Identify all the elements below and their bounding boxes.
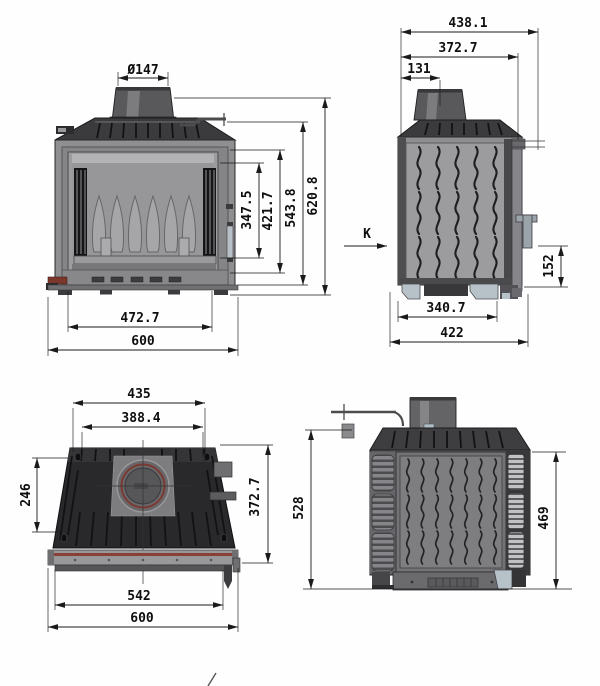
dim-label-front-total-height: 620.8 xyxy=(306,176,321,215)
dim-label-top-total-width: 600 xyxy=(130,611,154,626)
rear-bottom-drawer xyxy=(393,572,508,590)
front-feet xyxy=(58,290,228,295)
section-marker-label: K xyxy=(363,227,371,242)
stray-mark xyxy=(208,673,216,686)
front-log-rail xyxy=(74,256,216,264)
dim-side-base-depth: 340.7 xyxy=(398,301,497,322)
dim-label-rear-total-height: 528 xyxy=(292,496,307,520)
front-top-cap xyxy=(55,118,235,140)
dim-front-flue-diameter: Ø147 xyxy=(118,63,168,86)
dim-label-front-opening-height: 347.5 xyxy=(240,190,255,229)
dim-front-total-width: 600 xyxy=(48,297,238,356)
dim-label-top-front-bar-width: 542 xyxy=(127,589,150,604)
dim-front-glass-height: 421.7 xyxy=(230,150,285,273)
side-body xyxy=(398,137,545,299)
dim-label-front-body-height: 543.8 xyxy=(284,188,299,227)
front-lintel xyxy=(72,154,214,163)
dim-label-side-flue-rear-depth: 372.7 xyxy=(438,41,477,56)
dim-label-side-overall-depth: 422 xyxy=(440,326,463,341)
dim-rear-total-height: 528 xyxy=(292,430,352,589)
dim-label-rear-body-height: 469 xyxy=(537,506,552,529)
dim-label-side-total-depth: 438.1 xyxy=(448,16,487,31)
front-base-strip xyxy=(48,285,238,290)
dim-label-front-glass-height: 421.7 xyxy=(261,191,276,230)
front-name-plate xyxy=(48,277,67,284)
side-view: 438.1 372.7 131 K 152 340.7 xyxy=(344,16,568,347)
rear-view: 528 469 xyxy=(292,397,572,590)
dim-rear-body-height: 469 xyxy=(532,452,566,589)
top-front-bar-stripe xyxy=(50,553,236,556)
dim-side-handle-height: 152 xyxy=(524,246,568,287)
dim-label-front-flue-diameter: Ø147 xyxy=(126,63,158,78)
technical-drawing-canvas: Ø147 472.7 600 347.5 421.7 543.8 xyxy=(0,0,600,686)
front-grille-left xyxy=(74,168,87,256)
side-top-cap xyxy=(398,120,522,137)
technical-drawing-page: Ø147 472.7 600 347.5 421.7 543.8 xyxy=(0,0,600,686)
dim-label-side-base-depth: 340.7 xyxy=(426,301,465,316)
dim-top-front-bar-width: 542 xyxy=(55,570,223,610)
rear-left-column xyxy=(370,452,396,574)
rear-flue-pipe xyxy=(410,397,456,432)
dim-label-front-total-width: 600 xyxy=(131,334,155,349)
top-body xyxy=(48,440,240,589)
rear-top-cap xyxy=(370,428,530,450)
top-hinge-bracket xyxy=(214,462,232,477)
side-feet xyxy=(402,284,522,299)
dim-label-side-flue-offset: 131 xyxy=(407,62,431,77)
dim-label-top-body-width: 435 xyxy=(127,387,150,402)
front-grille-right xyxy=(203,168,216,256)
dim-label-side-handle-height: 152 xyxy=(542,254,557,277)
rear-body xyxy=(370,450,530,590)
front-view: Ø147 472.7 600 347.5 421.7 543.8 xyxy=(46,63,331,356)
top-view: 435 388.4 246 372.7 542 600 xyxy=(19,387,273,632)
dim-front-opening-width: 472.7 xyxy=(68,291,212,332)
dim-label-top-inner-width: 388.4 xyxy=(121,411,160,426)
front-flue-pipe xyxy=(110,87,176,122)
top-side-bracket xyxy=(210,492,236,500)
rear-right-bellows xyxy=(506,450,530,575)
top-front-bar xyxy=(48,550,238,571)
side-section-marker: K xyxy=(344,227,387,246)
dim-label-top-overall-depth: 372.7 xyxy=(248,477,263,516)
dim-label-front-opening-width: 472.7 xyxy=(120,311,159,326)
front-body xyxy=(46,140,238,295)
dim-label-top-plate-depth: 246 xyxy=(19,483,34,507)
